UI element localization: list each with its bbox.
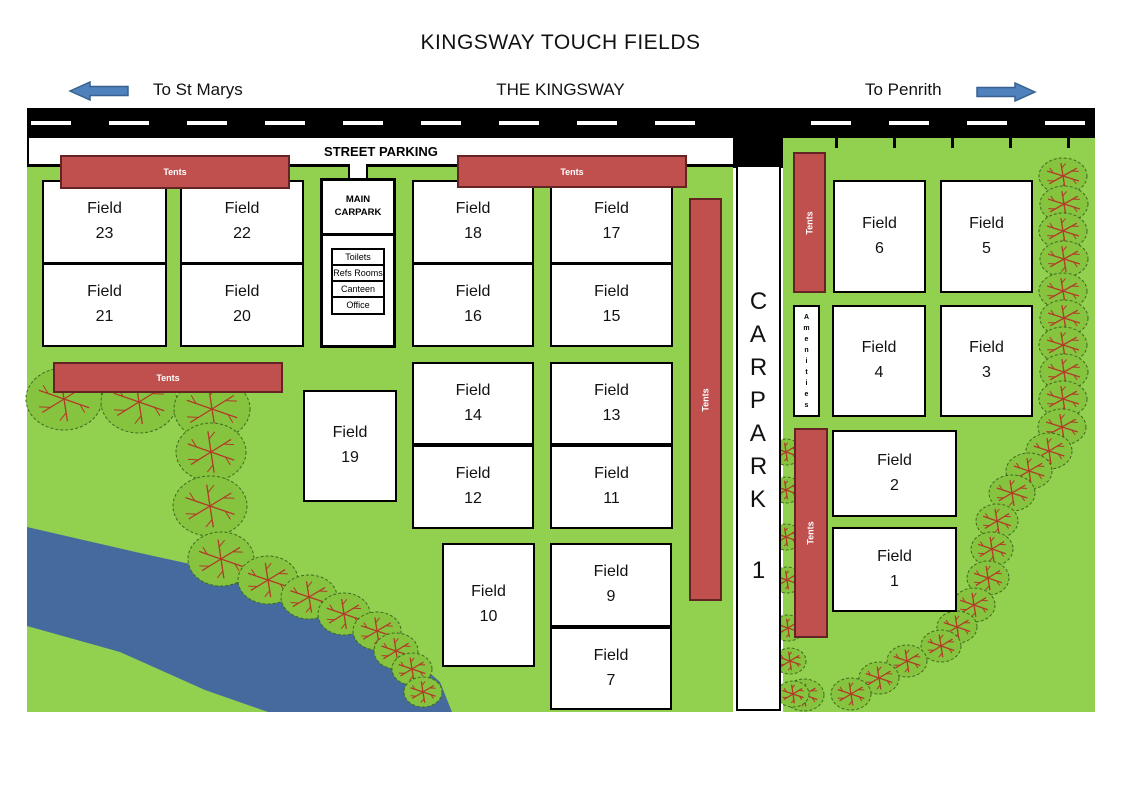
field-box-2: Field2 bbox=[832, 430, 957, 517]
field-box-1: Field1 bbox=[832, 527, 957, 612]
facility-room-label: Refs Rooms bbox=[333, 266, 383, 282]
street-parking-label: STREET PARKING bbox=[324, 144, 438, 159]
field-word: Field bbox=[456, 462, 491, 487]
field-number: 18 bbox=[464, 222, 482, 247]
field-word: Field bbox=[594, 462, 629, 487]
field-word: Field bbox=[87, 280, 122, 305]
field-box-5: Field5 bbox=[940, 180, 1033, 293]
field-word: Field bbox=[225, 280, 260, 305]
river-shape bbox=[27, 527, 452, 712]
facilities-block: ToiletsRefs RoomsCanteenOffice bbox=[331, 248, 385, 315]
main-carpark-label: MAIN CARPARK bbox=[323, 181, 393, 236]
field-number: 12 bbox=[464, 487, 482, 512]
field-box-12: Field12 bbox=[412, 445, 534, 529]
field-box-4: Field4 bbox=[832, 305, 926, 417]
field-box-21: Field21 bbox=[42, 263, 167, 347]
field-box-14: Field14 bbox=[412, 362, 534, 445]
field-box-7: Field7 bbox=[550, 627, 672, 710]
field-box-18: Field18 bbox=[412, 180, 534, 264]
amenities-label: Amenities bbox=[803, 312, 809, 411]
parking-bay-tick bbox=[1009, 138, 1012, 148]
carpark-letter: C bbox=[750, 285, 767, 318]
field-word: Field bbox=[594, 560, 629, 585]
carpark-letter: R bbox=[750, 450, 767, 483]
field-number: 9 bbox=[607, 585, 616, 610]
field-word: Field bbox=[87, 197, 122, 222]
field-number: 23 bbox=[96, 222, 114, 247]
field-word: Field bbox=[333, 421, 368, 446]
field-number: 13 bbox=[603, 404, 621, 429]
field-number: 1 bbox=[890, 570, 899, 595]
carpark-letter: R bbox=[750, 351, 767, 384]
tents-label: Tents bbox=[805, 211, 815, 234]
parking-bay-tick bbox=[951, 138, 954, 148]
parking-bay-tick bbox=[893, 138, 896, 148]
field-word: Field bbox=[594, 379, 629, 404]
field-number: 21 bbox=[96, 305, 114, 330]
field-number: 4 bbox=[875, 361, 884, 386]
carpark-1-area: CARPARK 1 bbox=[736, 167, 781, 711]
carpark-letter: A bbox=[750, 417, 767, 450]
tents-label: Tents bbox=[560, 167, 583, 177]
site-map: KINGSWAY TOUCH FIELDS To St Marys THE KI… bbox=[0, 0, 1121, 793]
field-word: Field bbox=[471, 580, 506, 605]
tents-marquee: Tents bbox=[794, 428, 828, 638]
field-number: 3 bbox=[982, 361, 991, 386]
field-number: 11 bbox=[603, 487, 620, 512]
field-box-10: Field10 bbox=[442, 543, 535, 667]
facility-room-label: Canteen bbox=[333, 282, 383, 298]
field-word: Field bbox=[877, 449, 912, 474]
field-box-16: Field16 bbox=[412, 263, 534, 347]
field-number: 20 bbox=[233, 305, 251, 330]
field-word: Field bbox=[225, 197, 260, 222]
field-word: Field bbox=[969, 212, 1004, 237]
field-box-13: Field13 bbox=[550, 362, 673, 445]
field-number: 10 bbox=[480, 605, 498, 630]
field-word: Field bbox=[594, 197, 629, 222]
tents-label: Tents bbox=[806, 521, 816, 544]
field-number: 14 bbox=[464, 404, 482, 429]
field-word: Field bbox=[969, 336, 1004, 361]
field-word: Field bbox=[862, 212, 897, 237]
facility-room-label: Office bbox=[333, 298, 383, 312]
field-box-20: Field20 bbox=[180, 263, 304, 347]
tents-label: Tents bbox=[156, 373, 179, 383]
field-number: 17 bbox=[603, 222, 621, 247]
field-number: 2 bbox=[890, 474, 899, 499]
field-number: 5 bbox=[982, 237, 991, 262]
field-number: 16 bbox=[464, 305, 482, 330]
field-number: 7 bbox=[607, 669, 616, 694]
tents-marquee: Tents bbox=[793, 152, 826, 293]
carpark-entrance bbox=[733, 108, 783, 168]
field-word: Field bbox=[877, 545, 912, 570]
field-box-22: Field22 bbox=[180, 180, 304, 264]
field-box-15: Field15 bbox=[550, 263, 673, 347]
field-number: 6 bbox=[875, 237, 884, 262]
road-the-kingsway bbox=[27, 108, 1095, 138]
field-word: Field bbox=[456, 379, 491, 404]
field-number: 22 bbox=[233, 222, 251, 247]
field-word: Field bbox=[594, 280, 629, 305]
field-box-9: Field9 bbox=[550, 543, 672, 627]
main-carpark-building: MAIN CARPARK ToiletsRefs RoomsCanteenOff… bbox=[320, 178, 396, 348]
tents-marquee: Tents bbox=[689, 198, 722, 601]
field-number: 19 bbox=[341, 446, 359, 471]
field-box-19: Field19 bbox=[303, 390, 397, 502]
field-word: Field bbox=[456, 197, 491, 222]
parking-bay-tick bbox=[835, 138, 838, 148]
field-word: Field bbox=[862, 336, 897, 361]
tents-label: Tents bbox=[701, 388, 711, 411]
tents-label: Tents bbox=[163, 167, 186, 177]
field-box-11: Field11 bbox=[550, 445, 673, 529]
amenities-building: Amenities bbox=[793, 305, 820, 417]
facility-room-label: Toilets bbox=[333, 250, 383, 266]
tents-marquee: Tents bbox=[457, 155, 687, 188]
field-word: Field bbox=[594, 644, 629, 669]
field-box-6: Field6 bbox=[833, 180, 926, 293]
carpark-1-number: 1 bbox=[752, 554, 765, 587]
parking-bay-tick bbox=[1067, 138, 1070, 148]
field-box-3: Field3 bbox=[940, 305, 1033, 417]
carpark-1-label: CARPARK bbox=[750, 285, 767, 516]
road-centerline bbox=[31, 121, 1091, 125]
tents-marquee: Tents bbox=[60, 155, 290, 189]
carpark-letter: P bbox=[750, 384, 767, 417]
field-number: 15 bbox=[603, 305, 621, 330]
field-word: Field bbox=[456, 280, 491, 305]
carpark-letter: K bbox=[750, 483, 767, 516]
carpark-letter: A bbox=[750, 318, 767, 351]
field-box-23: Field23 bbox=[42, 180, 167, 264]
tents-marquee: Tents bbox=[53, 362, 283, 393]
field-box-17: Field17 bbox=[550, 180, 673, 264]
